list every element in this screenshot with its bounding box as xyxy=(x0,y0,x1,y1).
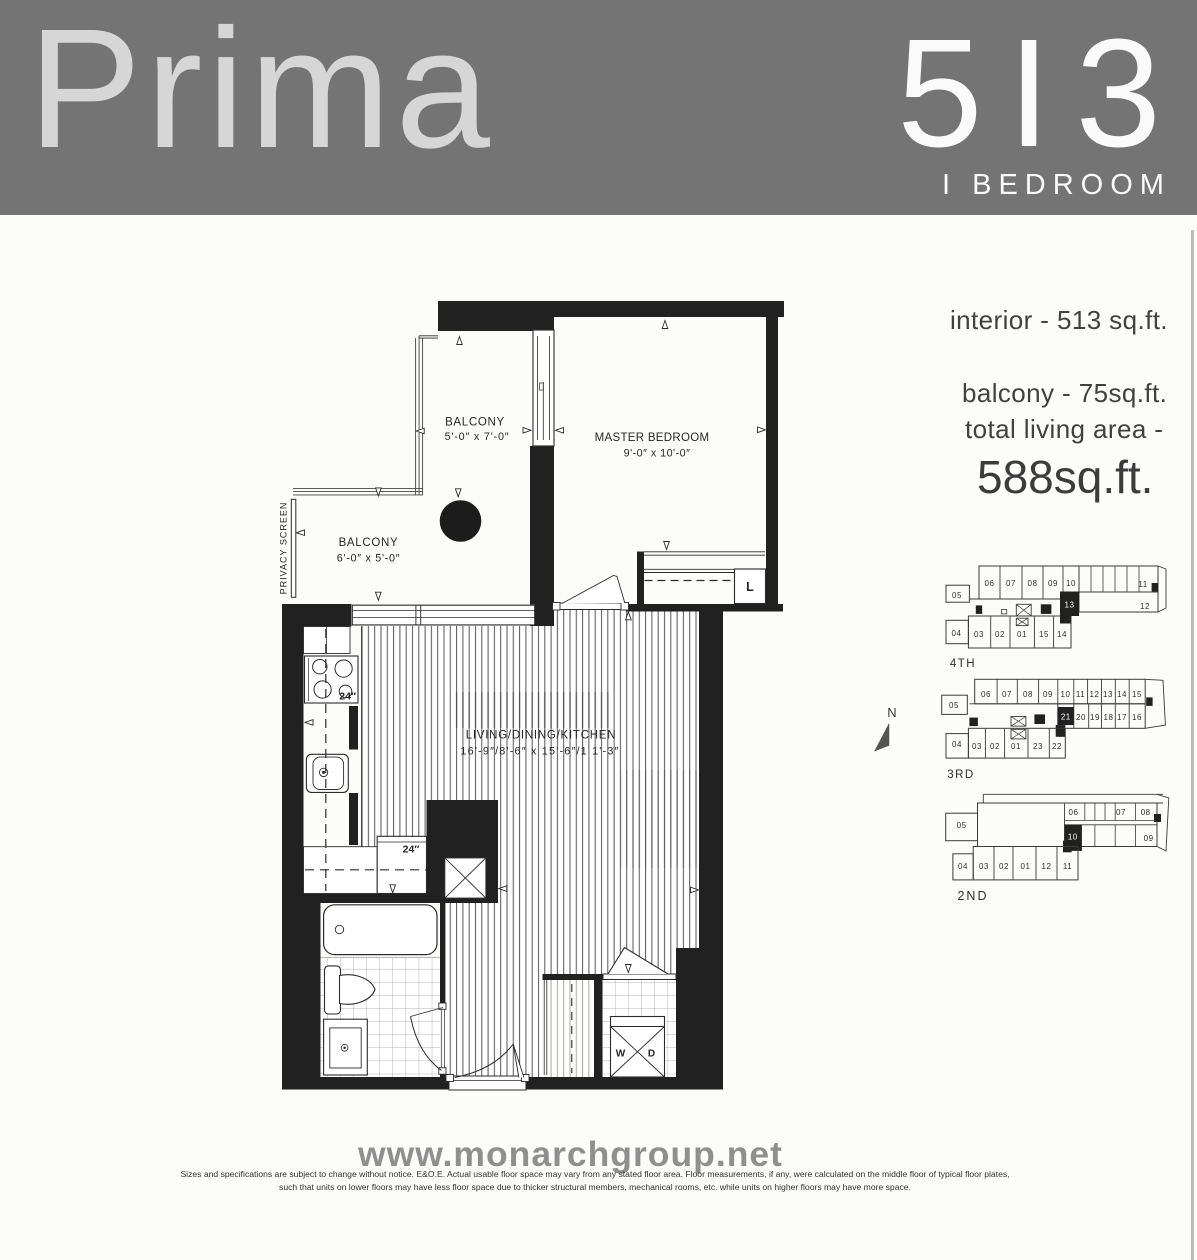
svg-text:09: 09 xyxy=(1048,579,1058,588)
svg-text:08: 08 xyxy=(1141,808,1151,817)
svg-text:01: 01 xyxy=(1017,630,1027,639)
svg-text:08: 08 xyxy=(1028,579,1038,588)
svg-text:09: 09 xyxy=(1043,690,1053,699)
svg-text:19: 19 xyxy=(1090,713,1100,722)
svg-text:BALCONY: BALCONY xyxy=(339,537,399,549)
svg-text:PRIVACY SCREEN: PRIVACY SCREEN xyxy=(279,502,289,595)
svg-text:11: 11 xyxy=(1138,580,1147,589)
svg-text:07: 07 xyxy=(1006,579,1016,588)
svg-text:06: 06 xyxy=(985,579,995,588)
svg-text:01: 01 xyxy=(1021,862,1031,871)
svg-text:24″: 24″ xyxy=(339,691,356,703)
svg-text:2ND: 2ND xyxy=(957,889,988,903)
svg-text:11: 11 xyxy=(1076,690,1085,699)
svg-text:04: 04 xyxy=(952,629,962,638)
svg-text:08: 08 xyxy=(1023,690,1033,699)
svg-text:03: 03 xyxy=(974,630,984,639)
svg-text:15: 15 xyxy=(1132,690,1142,699)
svg-text:9'-0″ x 10'-0″: 9'-0″ x 10'-0″ xyxy=(624,448,691,460)
svg-text:01: 01 xyxy=(1011,742,1021,751)
svg-text:02: 02 xyxy=(995,630,1005,639)
svg-text:22: 22 xyxy=(1052,742,1062,751)
svg-text:09: 09 xyxy=(1144,834,1154,843)
svg-text:L: L xyxy=(746,580,754,594)
svg-text:16'-9″/8'-6″ x 15'-6″/1 1'-3″: 16'-9″/8'-6″ x 15'-6″/1 1'-3″ xyxy=(460,746,619,758)
svg-text:05: 05 xyxy=(957,821,967,830)
svg-text:06: 06 xyxy=(981,690,991,699)
svg-text:03: 03 xyxy=(979,862,989,871)
svg-text:23: 23 xyxy=(1033,742,1043,751)
svg-text:13: 13 xyxy=(1103,690,1113,699)
svg-text:04: 04 xyxy=(952,740,962,749)
svg-text:17: 17 xyxy=(1117,713,1127,722)
svg-text:12: 12 xyxy=(1042,862,1052,871)
svg-text:14: 14 xyxy=(1057,630,1067,639)
svg-text:07: 07 xyxy=(1002,690,1012,699)
svg-text:LIVING/DINING/KITCHEN: LIVING/DINING/KITCHEN xyxy=(466,730,617,742)
svg-text:15: 15 xyxy=(1039,630,1049,639)
svg-text:20: 20 xyxy=(1076,713,1086,722)
svg-text:12: 12 xyxy=(1140,602,1150,611)
svg-text:13: 13 xyxy=(1065,601,1075,610)
svg-text:11: 11 xyxy=(1063,862,1072,871)
svg-text:24″: 24″ xyxy=(403,844,420,856)
svg-text:MASTER BEDROOM: MASTER BEDROOM xyxy=(595,432,710,444)
svg-text:07: 07 xyxy=(1116,808,1126,817)
svg-text:14: 14 xyxy=(1117,690,1127,699)
svg-text:6'-0″ x 5'-0″: 6'-0″ x 5'-0″ xyxy=(337,553,400,565)
svg-text:12: 12 xyxy=(1090,690,1100,699)
svg-text:D: D xyxy=(648,1049,655,1060)
svg-text:02: 02 xyxy=(990,742,1000,751)
svg-text:05: 05 xyxy=(949,701,959,710)
svg-text:18: 18 xyxy=(1104,713,1114,722)
svg-text:21: 21 xyxy=(1061,713,1071,722)
svg-text:06: 06 xyxy=(1069,808,1079,817)
svg-text:04: 04 xyxy=(958,862,968,871)
svg-text:03: 03 xyxy=(972,742,982,751)
svg-text:BALCONY: BALCONY xyxy=(445,417,505,429)
svg-text:5'-0″ x 7'-0″: 5'-0″ x 7'-0″ xyxy=(445,431,510,443)
svg-text:10: 10 xyxy=(1068,833,1078,842)
svg-text:4TH: 4TH xyxy=(950,658,976,670)
svg-text:05: 05 xyxy=(952,591,962,600)
svg-text:W: W xyxy=(616,1049,626,1060)
svg-text:10: 10 xyxy=(1066,579,1076,588)
svg-text:02: 02 xyxy=(999,862,1009,871)
svg-text:3RD: 3RD xyxy=(947,769,975,781)
svg-text:16: 16 xyxy=(1132,713,1142,722)
svg-text:N: N xyxy=(887,705,896,720)
svg-text:10: 10 xyxy=(1061,690,1071,699)
